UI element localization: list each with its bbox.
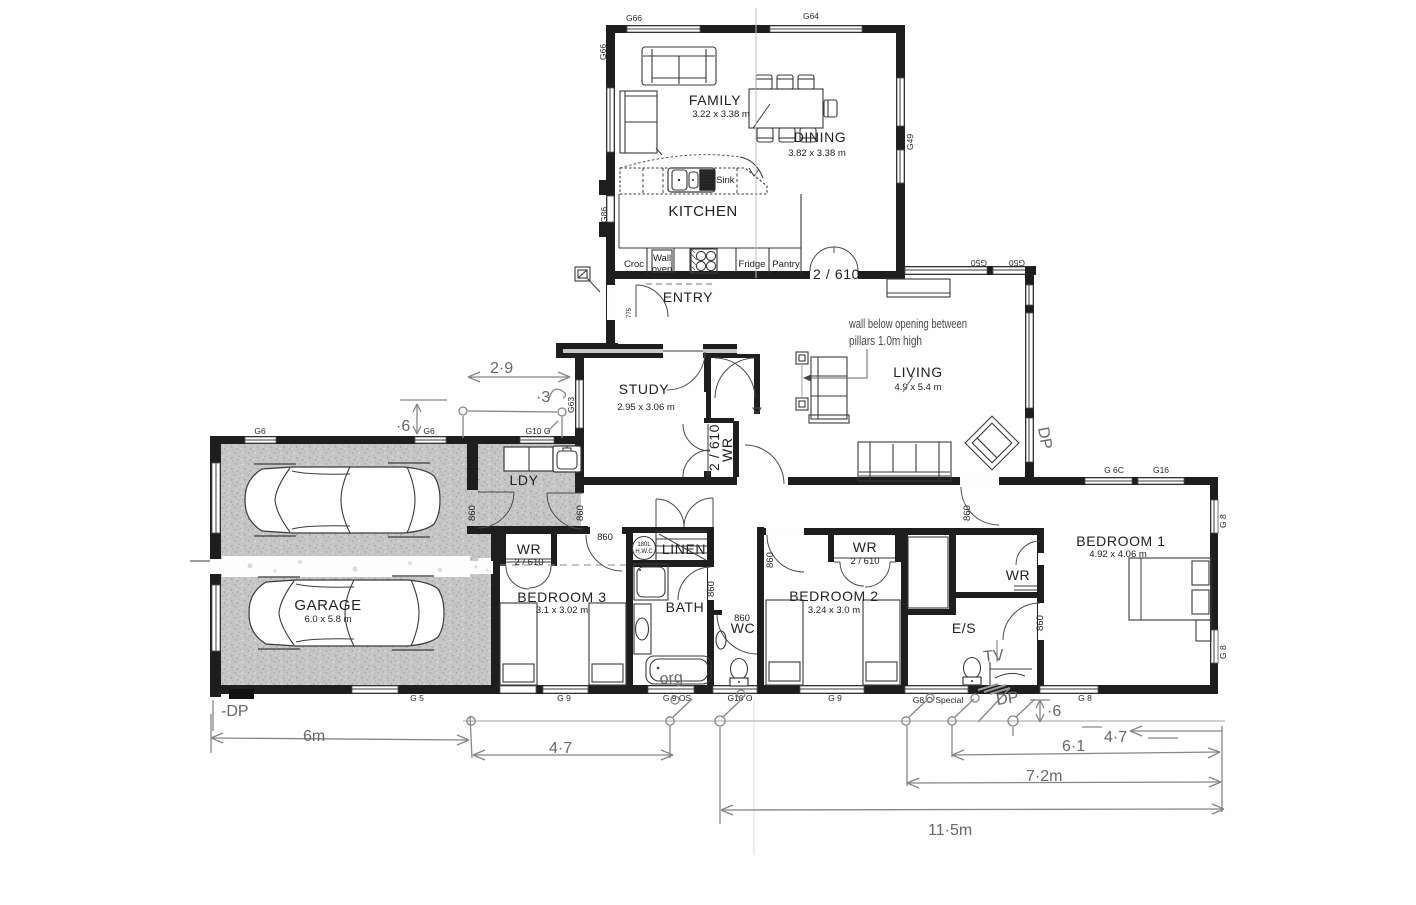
svg-text:G50: G50 [971, 258, 987, 268]
svg-text:G49: G49 [905, 134, 915, 150]
svg-text:GARAGE: GARAGE [294, 597, 361, 614]
svg-text:G86: G86 [599, 207, 609, 223]
svg-text:BEDROOM 1: BEDROOM 1 [1076, 533, 1165, 549]
svg-text:G 5: G 5 [410, 693, 424, 703]
svg-text:860: 860 [597, 532, 613, 543]
svg-text:860: 860 [706, 581, 717, 597]
svg-text:Fridge: Fridge [739, 259, 766, 270]
svg-text:BEDROOM 2: BEDROOM 2 [789, 588, 878, 604]
svg-text:11·5m: 11·5m [928, 822, 972, 839]
svg-text:6m: 6m [303, 728, 325, 745]
svg-text:860: 860 [575, 505, 586, 521]
svg-text:G63: G63 [566, 397, 576, 413]
svg-text:pillars 1.0m high: pillars 1.0m high [849, 334, 922, 348]
svg-text:TV: TV [983, 647, 1005, 666]
svg-text:6·1: 6·1 [1062, 738, 1085, 755]
svg-text:·6: ·6 [396, 418, 410, 435]
svg-text:4·7: 4·7 [549, 740, 572, 757]
svg-text:WR: WR [1006, 567, 1031, 583]
svg-text:DINING: DINING [794, 129, 847, 145]
svg-text:STUDY: STUDY [619, 381, 670, 397]
svg-text:G16: G16 [1153, 465, 1169, 475]
svg-text:3.24 x 3.0 m: 3.24 x 3.0 m [808, 605, 860, 616]
svg-text:G6: G6 [423, 426, 435, 436]
svg-text:H.W.C: H.W.C [635, 549, 653, 555]
svg-text:G 8: G 8 [1218, 514, 1228, 528]
svg-text:LDY: LDY [509, 472, 538, 488]
svg-text:WR: WR [853, 539, 878, 555]
svg-text:WR: WR [517, 541, 542, 557]
svg-text:2 / 610: 2 / 610 [813, 266, 860, 282]
svg-text:WC: WC [731, 620, 756, 636]
svg-text:3.82 x 3.38 m: 3.82 x 3.38 m [788, 148, 846, 159]
svg-text:·6: ·6 [1047, 703, 1061, 720]
svg-text:LINEN: LINEN [662, 541, 706, 557]
svg-text:4·7: 4·7 [1104, 729, 1127, 746]
svg-text:KITCHEN: KITCHEN [668, 203, 737, 220]
svg-text:G8 O Special: G8 O Special [913, 695, 964, 705]
svg-text:2·9: 2·9 [490, 360, 513, 377]
svg-text:G 8: G 8 [1218, 645, 1228, 659]
svg-text:WR: WR [719, 437, 735, 462]
svg-text:Wall: Wall [653, 253, 671, 264]
svg-text:6.0 x 5.8 m: 6.0 x 5.8 m [305, 614, 352, 625]
svg-text:-DP: -DP [221, 703, 249, 720]
svg-text:G64: G64 [803, 11, 819, 21]
svg-text:G66: G66 [598, 44, 608, 60]
svg-text:Sink: Sink [716, 175, 735, 186]
svg-text:G 8: G 8 [1078, 693, 1092, 703]
svg-text:LIVING: LIVING [893, 364, 943, 380]
svg-text:4.9 x 5.4 m: 4.9 x 5.4 m [895, 382, 942, 393]
svg-text:G 6C: G 6C [1104, 465, 1124, 475]
svg-text:G66: G66 [626, 13, 642, 23]
svg-text:2 / 610: 2 / 610 [850, 556, 879, 567]
svg-text:7·2m: 7·2m [1026, 768, 1062, 785]
svg-text:G50: G50 [1009, 258, 1025, 268]
svg-text:G 9: G 9 [557, 693, 571, 703]
svg-text:2 / 610: 2 / 610 [514, 557, 543, 568]
svg-text:Croc: Croc [624, 259, 644, 270]
svg-text:·3: ·3 [536, 389, 550, 406]
svg-text:oven: oven [652, 264, 673, 275]
svg-text:860: 860 [765, 552, 776, 568]
svg-text:Pantry: Pantry [772, 259, 800, 270]
svg-text:E/S: E/S [952, 620, 976, 636]
svg-text:wall below opening between: wall below opening between [848, 317, 967, 331]
svg-text:G6: G6 [254, 426, 266, 436]
svg-text:G 9: G 9 [828, 693, 842, 703]
svg-text:BEDROOM 3: BEDROOM 3 [517, 589, 606, 605]
svg-text:775: 775 [627, 307, 633, 318]
svg-text:org: org [659, 669, 683, 688]
svg-text:860: 860 [467, 505, 478, 521]
svg-text:3.22 x 3.38 m: 3.22 x 3.38 m [692, 109, 750, 120]
svg-text:ENTRY: ENTRY [663, 289, 713, 305]
svg-text:FAMILY: FAMILY [689, 92, 741, 108]
svg-text:BATH: BATH [666, 599, 705, 615]
svg-text:G 9 OS: G 9 OS [663, 693, 692, 703]
svg-text:2.95 x 3.06 m: 2.95 x 3.06 m [617, 402, 675, 413]
svg-text:180L: 180L [637, 542, 651, 548]
svg-text:3.1 x 3.02 m: 3.1 x 3.02 m [536, 605, 588, 616]
svg-text:860: 860 [1035, 615, 1046, 631]
svg-text:4.92 x 4.06 m: 4.92 x 4.06 m [1089, 549, 1147, 560]
svg-text:860: 860 [962, 505, 973, 521]
